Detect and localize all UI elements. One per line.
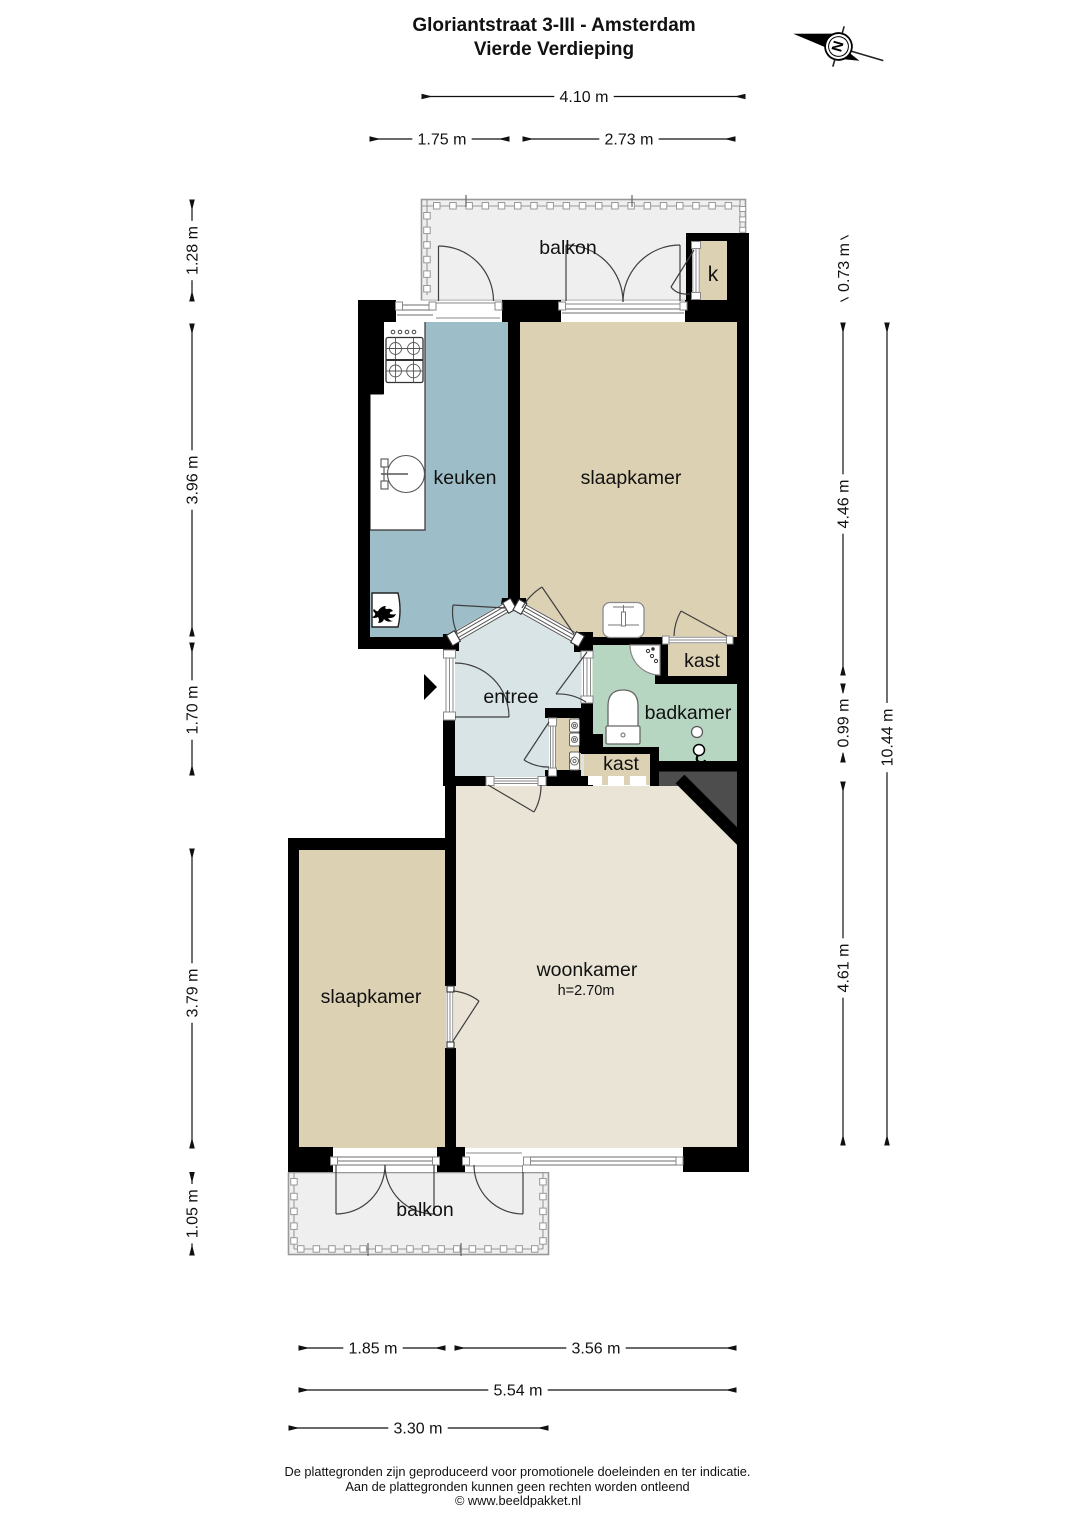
svg-text:1.75 m: 1.75 m <box>418 132 467 149</box>
svg-text:kast: kast <box>603 753 639 775</box>
svg-text:1.85 m: 1.85 m <box>349 1341 398 1358</box>
svg-text:Gloriantstraat 3-III - Amsterd: Gloriantstraat 3-III - Amsterdam <box>412 15 695 36</box>
svg-text:1.28 m: 1.28 m <box>185 226 202 275</box>
svg-text:entree: entree <box>483 686 538 708</box>
svg-text:0.99 m: 0.99 m <box>836 699 853 748</box>
svg-text:4.61 m: 4.61 m <box>836 944 853 993</box>
svg-text:woonkamer: woonkamer <box>536 959 638 981</box>
svg-text:kast: kast <box>684 650 720 672</box>
svg-text:De plattegronden zijn geproduc: De plattegronden zijn geproduceerd voor … <box>285 1464 751 1479</box>
svg-text:balkon: balkon <box>396 1199 453 1221</box>
svg-text:0.73 m: 0.73 m <box>836 243 853 292</box>
svg-text:5.54 m: 5.54 m <box>494 1383 543 1400</box>
svg-text:keuken: keuken <box>434 467 497 489</box>
svg-text:3.79 m: 3.79 m <box>185 969 202 1018</box>
svg-text:2.73 m: 2.73 m <box>605 132 654 149</box>
svg-text:1.70 m: 1.70 m <box>185 686 202 735</box>
svg-text:1.05 m: 1.05 m <box>185 1189 202 1238</box>
svg-text:4.46 m: 4.46 m <box>836 480 853 529</box>
svg-text:Aan de plattegronden kunnen ge: Aan de plattegronden kunnen geen rechten… <box>345 1479 689 1494</box>
svg-text:k: k <box>708 263 719 286</box>
svg-text:4.10 m: 4.10 m <box>560 89 609 106</box>
svg-text:Vierde Verdieping: Vierde Verdieping <box>474 39 634 60</box>
svg-text:balkon: balkon <box>539 237 596 259</box>
svg-text:10.44 m: 10.44 m <box>880 709 897 767</box>
svg-text:© www.beeldpakket.nl: © www.beeldpakket.nl <box>455 1493 581 1508</box>
svg-text:3.96 m: 3.96 m <box>185 456 202 505</box>
svg-text:3.30 m: 3.30 m <box>394 1421 443 1438</box>
svg-text:badkamer: badkamer <box>645 702 732 724</box>
svg-text:slaapkamer: slaapkamer <box>321 986 422 1008</box>
svg-text:3.56 m: 3.56 m <box>572 1341 621 1358</box>
svg-text:h=2.70m: h=2.70m <box>558 983 615 999</box>
svg-text:slaapkamer: slaapkamer <box>581 467 682 489</box>
